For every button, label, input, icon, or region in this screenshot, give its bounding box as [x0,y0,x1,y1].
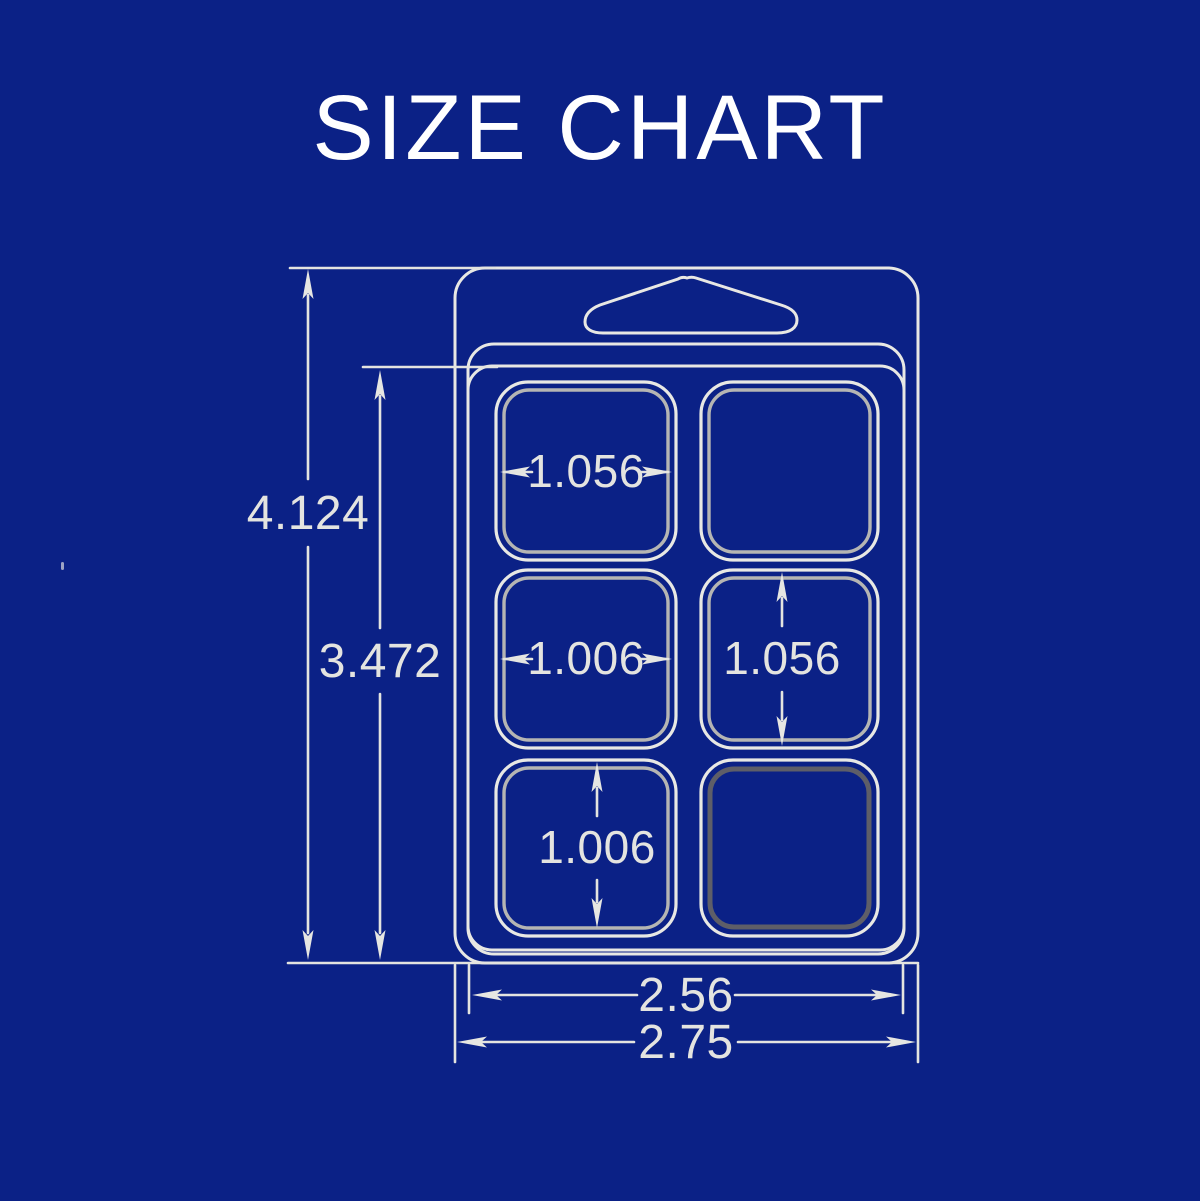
dimension-cavity-top-width: 1.056 [500,445,672,497]
cavity-top-width-label: 1.056 [527,445,645,497]
dimension-cavity-middle-height: 1.056 [723,572,841,746]
cavity-middle-height-label: 1.056 [723,632,841,684]
dimension-tray-height: 3.472 [319,370,442,960]
dimension-overall-height: 4.124 [247,269,370,960]
blister-pack-technical-drawing: 4.124 3.472 1.056 1.006 [0,0,1200,1201]
dimension-tray-width: 2.56 [472,969,901,1022]
cavity-bottom-height-label: 1.006 [538,821,656,873]
cavity-top-right [701,382,878,560]
dimension-cavity-bottom-height: 1.006 [538,762,656,928]
overall-width-label: 2.75 [638,1016,733,1069]
hang-tab-hole [585,277,797,333]
cavity-top-right-outer [701,382,878,560]
dimension-cavity-middle-width: 1.006 [500,632,672,684]
cavity-middle-width-label: 1.006 [527,632,645,684]
dust-speck [61,562,64,570]
arrow-down-icon [375,930,386,960]
cavity-bottom-right-outer [701,760,878,936]
tray-width-label: 2.56 [638,969,733,1022]
dimension-overall-width: 2.75 [457,1016,916,1069]
overall-height-label: 4.124 [247,487,370,540]
package-outline [455,268,918,963]
cavity-top-right-inner [709,390,870,552]
tray-height-label: 3.472 [319,635,442,688]
cavity-bottom-right [701,760,878,936]
arrow-down-icon [303,930,314,960]
card-outer-outline [455,268,918,963]
size-chart-page: SIZE CHART [0,0,1200,1201]
cavity-bottom-right-inner [710,769,869,927]
